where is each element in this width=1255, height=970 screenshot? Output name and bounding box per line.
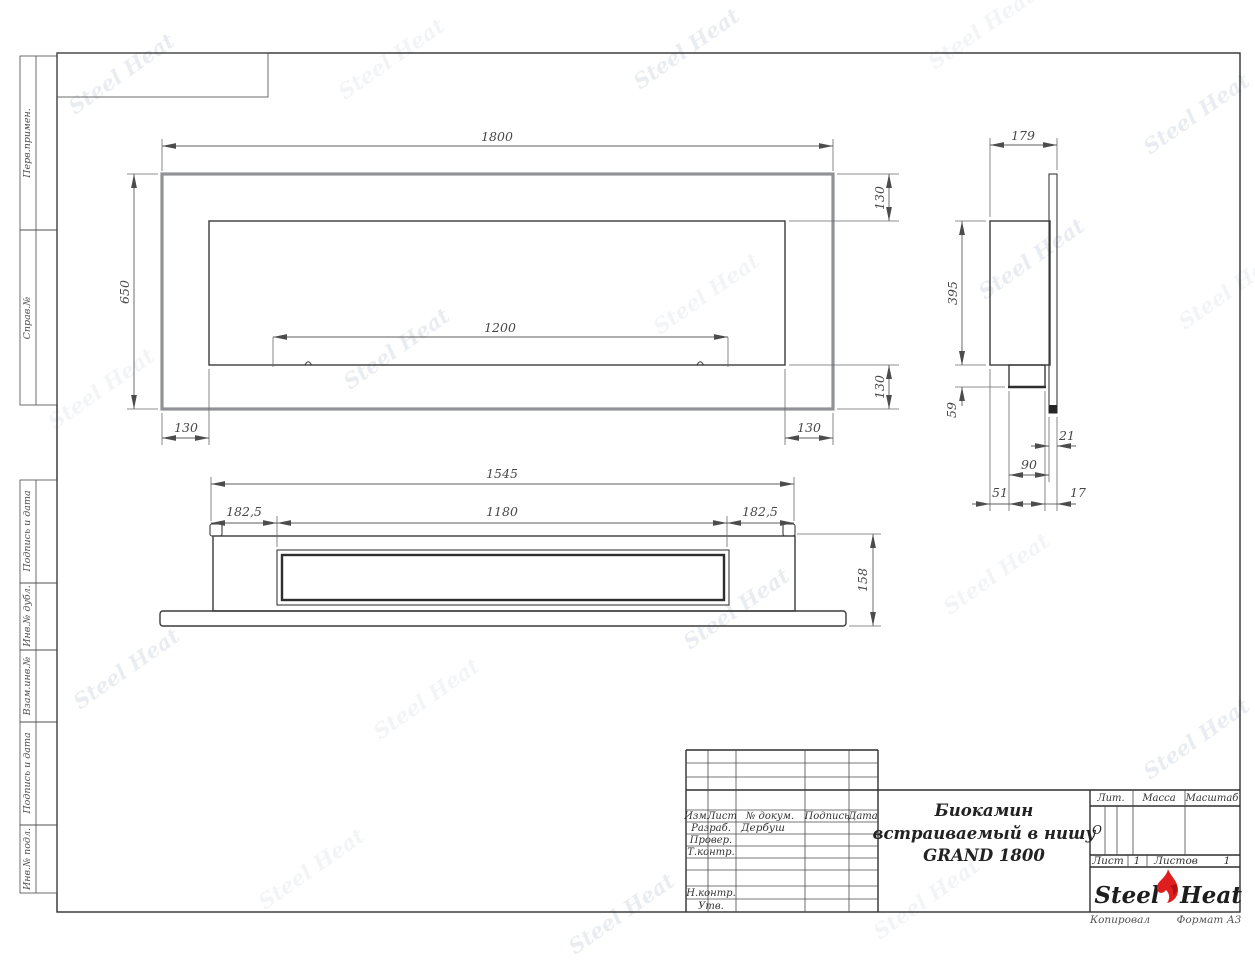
sheets-total: 1: [1224, 855, 1231, 867]
watermark-layer: Steel Heat Steel Heat Steel Heat Steel H…: [44, 0, 1255, 959]
dim-bottom-left-margin: 182,5: [226, 504, 262, 519]
stamp-label-vzam-inv: Взам.инв.№: [22, 657, 33, 717]
watermark-text: Steel Heat: [69, 623, 185, 714]
col-ndokum: № докум.: [745, 811, 794, 822]
logo-heat-text: Heat: [1179, 882, 1242, 909]
col-list: Лист: [706, 811, 737, 822]
sheet-label: Лист: [1091, 855, 1123, 867]
watermark-text: Steel Heat: [629, 3, 745, 94]
watermark-text: Steel Heat: [1139, 68, 1255, 159]
dim-side-niche-height: 395: [945, 281, 960, 305]
watermark-text: Steel Heat: [679, 563, 795, 654]
watermark-text: Steel Heat: [1139, 693, 1255, 784]
dim-front-top-offset: 130: [872, 186, 887, 210]
row-developed-value: Дербуш: [740, 822, 785, 834]
row-tcontrol-label: Т.контр.: [687, 847, 735, 858]
burner-tray-outer: [277, 550, 729, 605]
stamp-label-podpis-data-1: Подпись и дата: [22, 490, 33, 573]
logo-steel-text: Steel: [1094, 882, 1160, 909]
row-approved-label: Утв.: [698, 901, 724, 912]
row-ncontrol-label: Н.контр.: [685, 888, 736, 899]
row-checked-label: Провер.: [689, 835, 732, 846]
watermark-text: Steel Heat: [254, 823, 370, 914]
copied-label: Копировал: [1089, 914, 1150, 926]
dim-front-left-offset: 130: [174, 420, 198, 435]
dim-bottom-burner-width: 1180: [486, 504, 518, 519]
col-izm: Изм.: [683, 811, 710, 822]
side-panel-foot: [1049, 405, 1057, 413]
stamp-label-sprav-no: Справ.№: [22, 297, 33, 340]
side-view: 179 395 59 21 90 51 17: [944, 128, 1086, 511]
dim-side-panel-width: 21: [1058, 428, 1075, 443]
doc-title-line3: GRAND 1800: [923, 846, 1045, 865]
doc-title-line1: Биокамин: [934, 801, 1034, 820]
watermark-text: Steel Heat: [64, 28, 180, 119]
scale-label: Масштаб: [1185, 793, 1240, 804]
front-outer-frame: [162, 174, 833, 409]
dim-side-gap: 17: [1070, 485, 1086, 500]
dim-bottom-depth: 158: [855, 568, 870, 592]
front-view: 1800 650 130 130 1200 130 130: [117, 129, 899, 445]
sheets-label: Листов: [1153, 855, 1198, 867]
left-stamp-column: Перв.примен. Справ.№ Подпись и дата Инв.…: [20, 56, 57, 893]
watermark-text: Steel Heat: [369, 653, 485, 744]
row-developed-label: Разраб.: [690, 823, 731, 834]
dim-bottom-body-width: 1545: [486, 466, 518, 481]
stamp-label-inv-dubl: Инв.№ дубл.: [22, 585, 33, 648]
burner-tray-inner: [282, 555, 724, 600]
dim-front-burner-span: 1200: [484, 320, 516, 335]
bottom-view: 1545 182,5 1180 182,5 158: [160, 466, 881, 626]
stamp-label-podpis-data-2: Подпись и дата: [22, 732, 33, 815]
lit-label: Лит.: [1096, 793, 1124, 804]
stamp-label-perv-primen: Перв.примен.: [22, 108, 33, 179]
dim-side-burner-box-depth: 90: [1021, 457, 1037, 472]
watermark-text: Steel Heat: [924, 0, 1040, 74]
dim-front-bottom-offset: 130: [872, 375, 887, 399]
dim-front-height: 650: [117, 280, 132, 304]
watermark-text: Steel Heat: [339, 303, 455, 394]
lit-value: О: [1092, 823, 1102, 837]
stamp-label-inv-podl: Инв.№ подл.: [22, 828, 33, 891]
watermark-text: Steel Heat: [649, 248, 765, 339]
watermark-text: Steel Heat: [1174, 243, 1255, 334]
col-podpis: Подпись: [803, 811, 849, 822]
sheet-number: 1: [1134, 855, 1141, 867]
watermark-text: Steel Heat: [869, 853, 985, 944]
watermark-text: Steel Heat: [44, 343, 160, 434]
drawing-sheet: Steel Heat Steel Heat Steel Heat Steel H…: [0, 0, 1255, 970]
dim-bottom-right-margin: 182,5: [742, 504, 778, 519]
watermark-text: Steel Heat: [974, 213, 1090, 304]
dim-front-width: 1800: [481, 129, 513, 144]
dim-front-right-offset: 130: [797, 420, 821, 435]
sheet-frame: [57, 53, 1240, 912]
side-burner-box: [1009, 365, 1045, 387]
watermark-text: Steel Heat: [564, 868, 680, 959]
col-data: Дата: [847, 811, 878, 822]
dim-side-back-offset: 51: [992, 485, 1008, 500]
watermark-text: Steel Heat: [939, 528, 1055, 619]
format-label: Формат А3: [1177, 914, 1242, 926]
dim-side-depth: 179: [1011, 128, 1035, 143]
doc-title-line2: встраиваемый в нишу: [873, 824, 1097, 843]
bracket-right: [783, 524, 795, 536]
dim-side-burner-box-height: 59: [944, 402, 959, 418]
watermark-text: Steel Heat: [334, 13, 450, 104]
mass-label: Масса: [1141, 793, 1175, 804]
steelheat-logo: Steel Heat: [1094, 869, 1242, 909]
bracket-left: [210, 524, 222, 536]
